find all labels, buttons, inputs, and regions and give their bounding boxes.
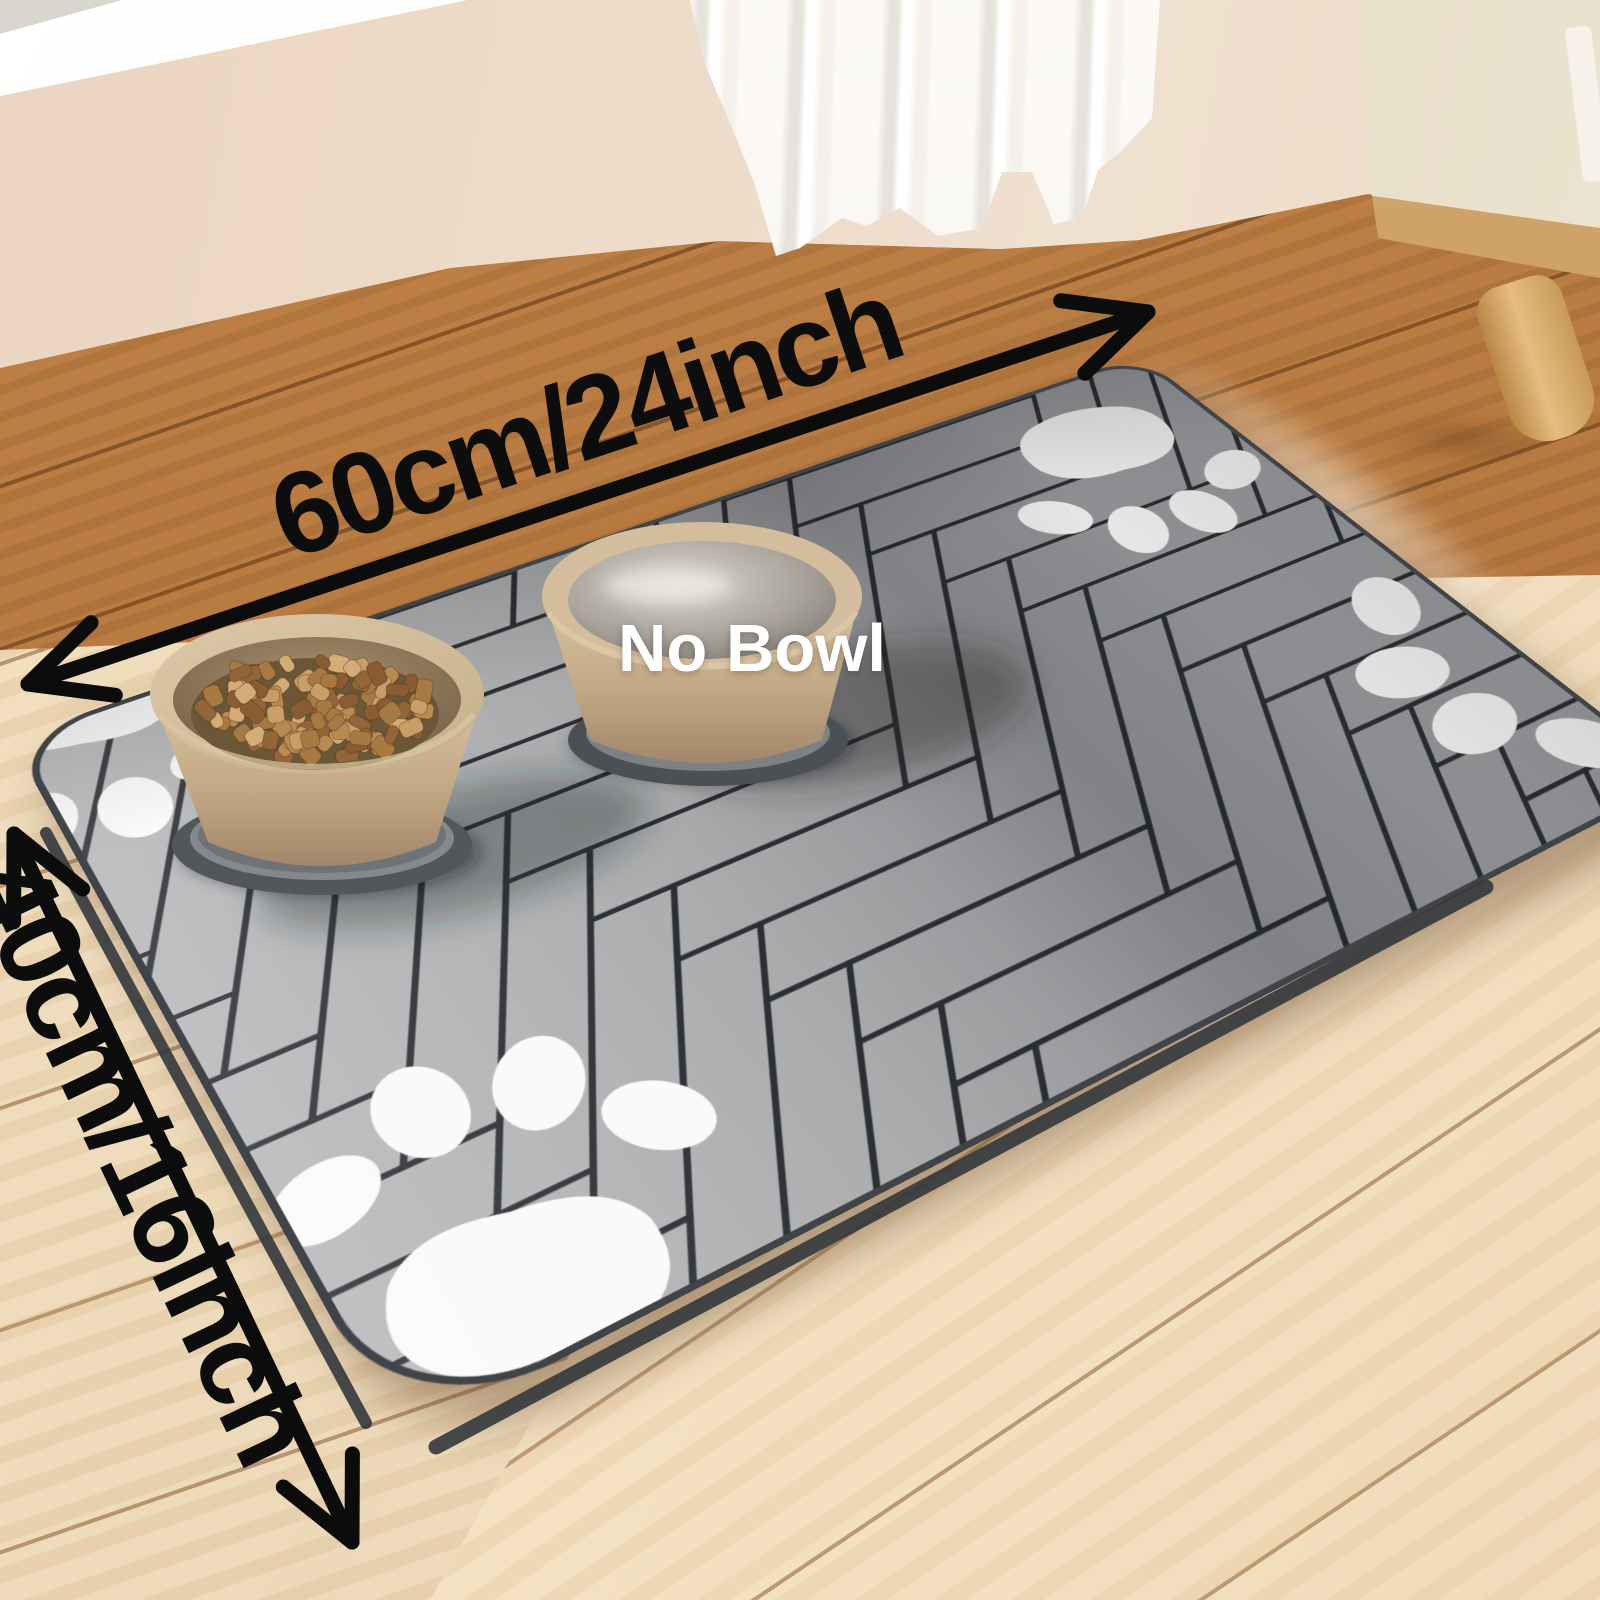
- no-bowl-label: No Bowl: [542, 610, 962, 687]
- pet-feeding-mat-product-photo: 60cm/24inch 40cm/16inch No Bowl: [0, 0, 1600, 1600]
